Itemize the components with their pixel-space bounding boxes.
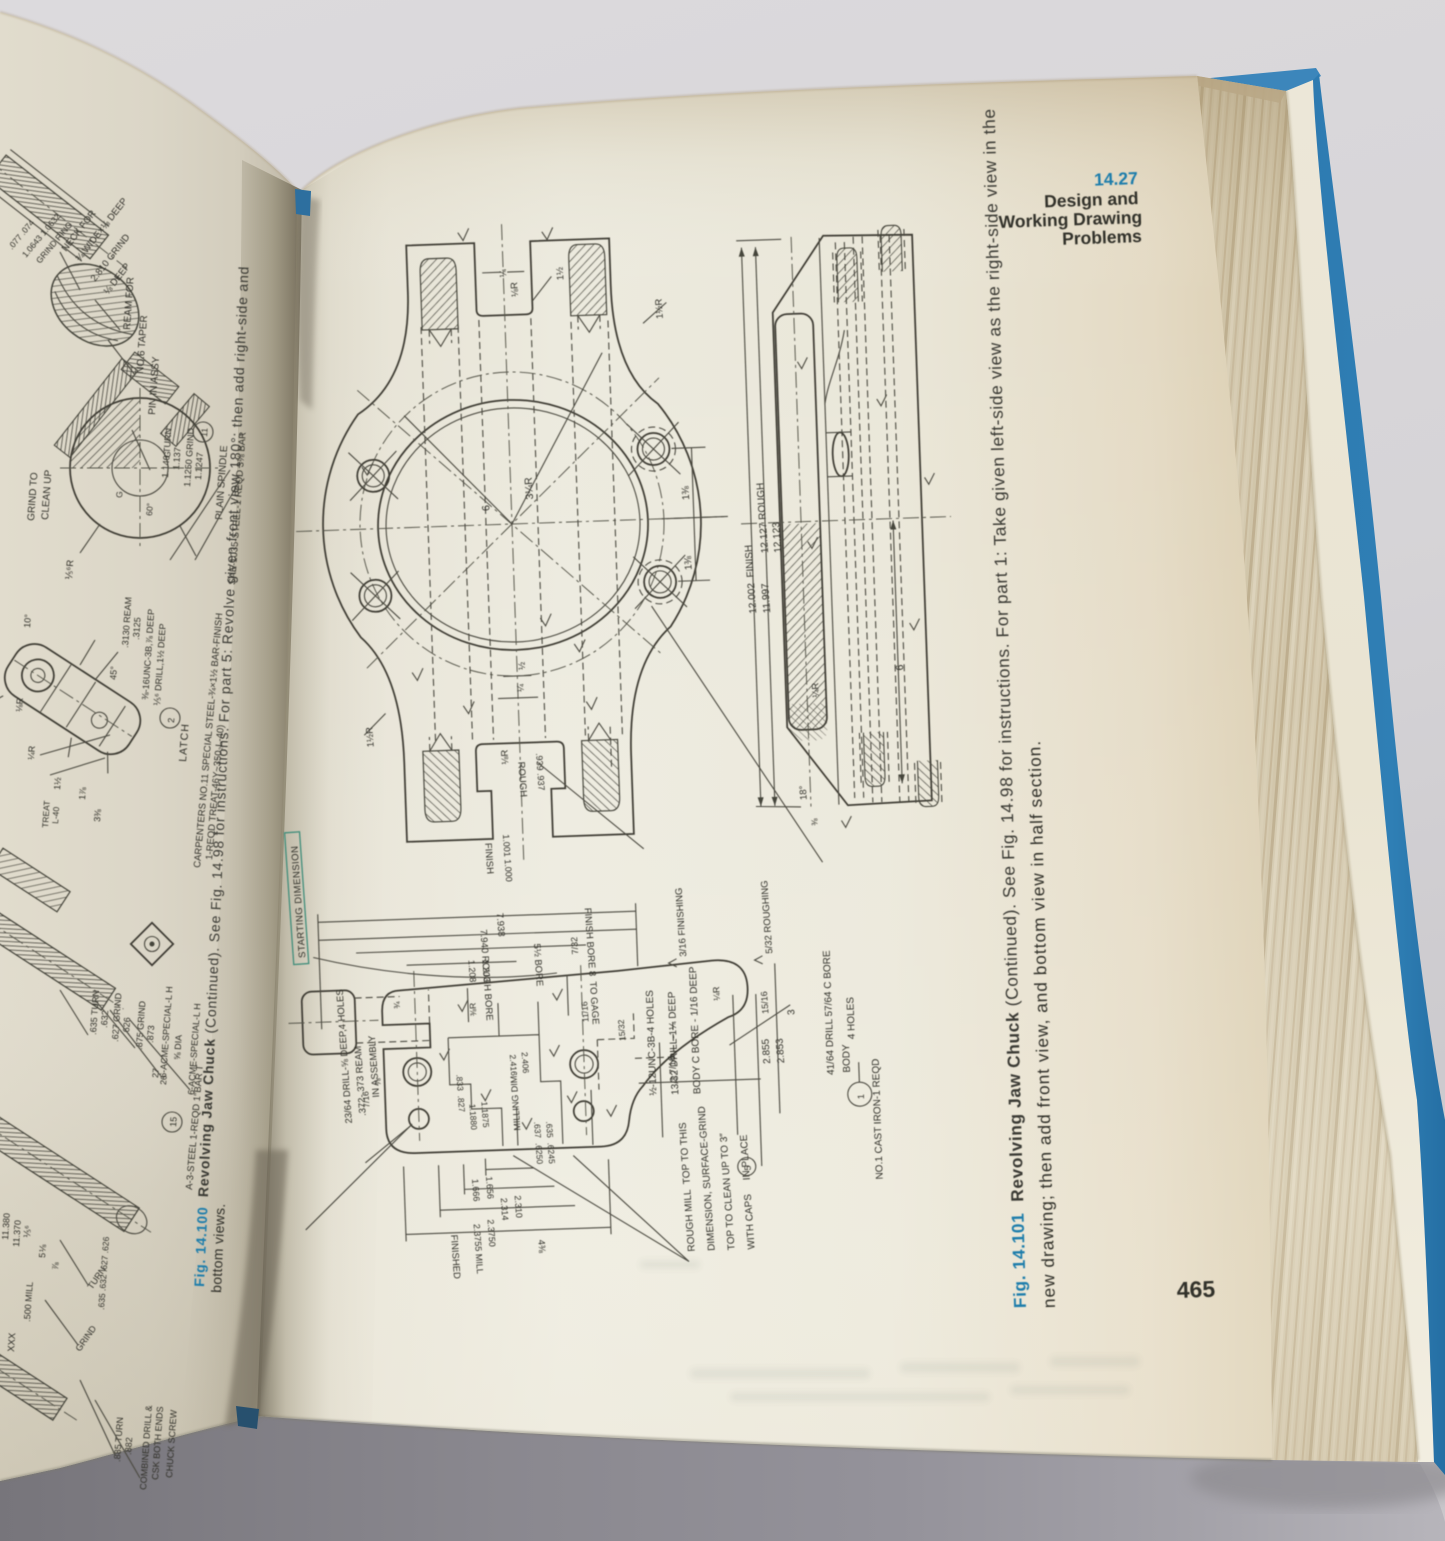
svg-text:⅕⁶R: ⅕⁶R [64, 559, 76, 580]
svg-text:2.855: 2.855 [760, 1038, 773, 1064]
svg-text:3⅜: 3⅜ [92, 808, 103, 822]
svg-text:1.137: 1.137 [171, 447, 183, 470]
svg-text:4 HOLES: 4 HOLES [845, 997, 857, 1040]
svg-text:G: G [114, 491, 124, 498]
svg-text:15/32: 15/32 [616, 1019, 627, 1041]
svg-text:2: 2 [166, 717, 176, 723]
svg-text:2.853: 2.853 [774, 1038, 787, 1064]
svg-text:¼R: ¼R [810, 682, 822, 698]
svg-text:11.370: 11.370 [11, 1220, 23, 1247]
svg-text:⅛R: ⅛R [14, 697, 25, 712]
svg-text:BODY: BODY [841, 1044, 853, 1073]
svg-text:12.123: 12.123 [771, 521, 784, 553]
svg-text:7.938: 7.938 [494, 913, 507, 937]
svg-text:1⅜: 1⅜ [680, 485, 692, 500]
svg-text:1½: 1½ [555, 267, 567, 281]
svg-text:1½R: 1½R [364, 727, 376, 748]
svg-text:1.656: 1.656 [484, 1176, 496, 1199]
svg-text:60°: 60° [144, 503, 155, 517]
svg-text:⅞: ⅞ [50, 1261, 61, 1270]
svg-text:45°: 45° [108, 665, 119, 680]
svg-text:11.380: 11.380 [0, 1213, 12, 1240]
svg-text:⅕⁶: ⅕⁶ [22, 1225, 33, 1238]
svg-text:2.314: 2.314 [499, 1198, 511, 1221]
svg-text:⅜R: ⅜R [467, 1003, 478, 1017]
svg-text:15: 15 [168, 1116, 179, 1127]
svg-text:1½: 1½ [52, 776, 63, 790]
svg-text:3¼R: 3¼R [523, 476, 537, 499]
svg-text:FINISH: FINISH [482, 843, 495, 875]
svg-text:7/16: 7/16 [360, 1091, 371, 1108]
svg-text:½: ½ [517, 661, 529, 670]
svg-text:1.208: 1.208 [466, 960, 478, 983]
svg-text:2.416: 2.416 [508, 1054, 519, 1076]
svg-text:4⅜: 4⅜ [535, 1239, 547, 1253]
svg-text:1.203: 1.203 [480, 959, 492, 982]
svg-text:⅝ DIA: ⅝ DIA [172, 1034, 184, 1060]
svg-text:1.1880: 1.1880 [467, 1104, 479, 1131]
svg-text:L-40: L-40 [50, 806, 61, 824]
svg-text:2.310: 2.310 [513, 1195, 525, 1218]
svg-text:G: G [162, 451, 172, 458]
svg-text:1.1875: 1.1875 [479, 1101, 491, 1128]
svg-text:15/16: 15/16 [759, 991, 771, 1014]
svg-text:6: 6 [480, 505, 492, 512]
svg-text:6: 6 [894, 664, 906, 671]
svg-text:1⅜: 1⅜ [683, 555, 695, 570]
svg-text:1.666: 1.666 [470, 1179, 482, 1202]
svg-text:1½R: 1½R [654, 298, 666, 319]
svg-text:⅛R: ⅛R [499, 749, 511, 765]
svg-text:1: 1 [856, 1094, 866, 1099]
svg-text:¼R: ¼R [26, 745, 37, 760]
svg-text:14.27: 14.27 [1094, 168, 1138, 190]
svg-text:.873: .873 [145, 1025, 156, 1043]
svg-text:1⅞: 1⅞ [77, 786, 88, 800]
svg-text:.632: .632 [99, 1010, 110, 1028]
svg-text:7/32: 7/32 [569, 937, 580, 955]
svg-text:465: 465 [1176, 1276, 1215, 1303]
svg-text:1.1247: 1.1247 [193, 452, 205, 480]
svg-text:¼R: ¼R [711, 986, 722, 1001]
svg-text:⅛R: ⅛R [509, 282, 521, 298]
svg-text:Problems: Problems [1062, 226, 1143, 249]
svg-text:11: 11 [199, 427, 210, 437]
svg-text:11.997: 11.997 [760, 582, 773, 613]
svg-text:2.3750: 2.3750 [485, 1219, 497, 1247]
svg-text:.3125: .3125 [131, 617, 143, 640]
svg-text:10°: 10° [22, 613, 33, 628]
svg-text:5: 5 [743, 1165, 753, 1171]
svg-text:2.406: 2.406 [520, 1052, 531, 1074]
svg-text:27: 27 [150, 1068, 161, 1079]
svg-text:11/16: 11/16 [579, 1001, 590, 1023]
svg-text:XXX: XXX [6, 1332, 18, 1352]
svg-text:18°: 18° [798, 785, 810, 800]
svg-text:5 ⅛: 5 ⅛ [37, 1244, 48, 1258]
